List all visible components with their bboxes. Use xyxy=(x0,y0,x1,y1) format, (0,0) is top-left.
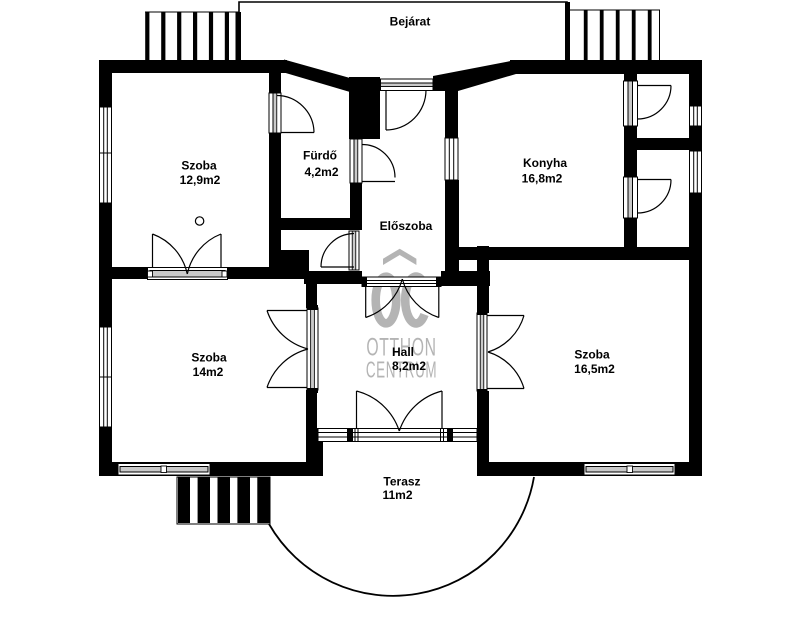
svg-text:Szoba: Szoba xyxy=(191,351,227,365)
svg-text:16,8m2: 16,8m2 xyxy=(522,172,563,186)
svg-text:Bejárat: Bejárat xyxy=(390,15,431,29)
svg-text:8,2m2: 8,2m2 xyxy=(392,359,426,373)
svg-text:12,9m2: 12,9m2 xyxy=(180,173,221,187)
svg-text:Fürdő: Fürdő xyxy=(303,149,337,163)
svg-text:Terasz: Terasz xyxy=(383,475,420,489)
svg-text:14m2: 14m2 xyxy=(193,365,224,379)
svg-text:11m2: 11m2 xyxy=(382,488,412,502)
svg-text:4,2m2: 4,2m2 xyxy=(304,165,338,179)
svg-text:Szoba: Szoba xyxy=(574,348,610,362)
svg-text:Szoba: Szoba xyxy=(181,158,217,172)
svg-text:Hall: Hall xyxy=(392,345,414,359)
svg-text:Előszoba: Előszoba xyxy=(380,219,433,233)
svg-text:16,5m2: 16,5m2 xyxy=(574,362,615,376)
svg-text:Konyha: Konyha xyxy=(523,156,567,170)
